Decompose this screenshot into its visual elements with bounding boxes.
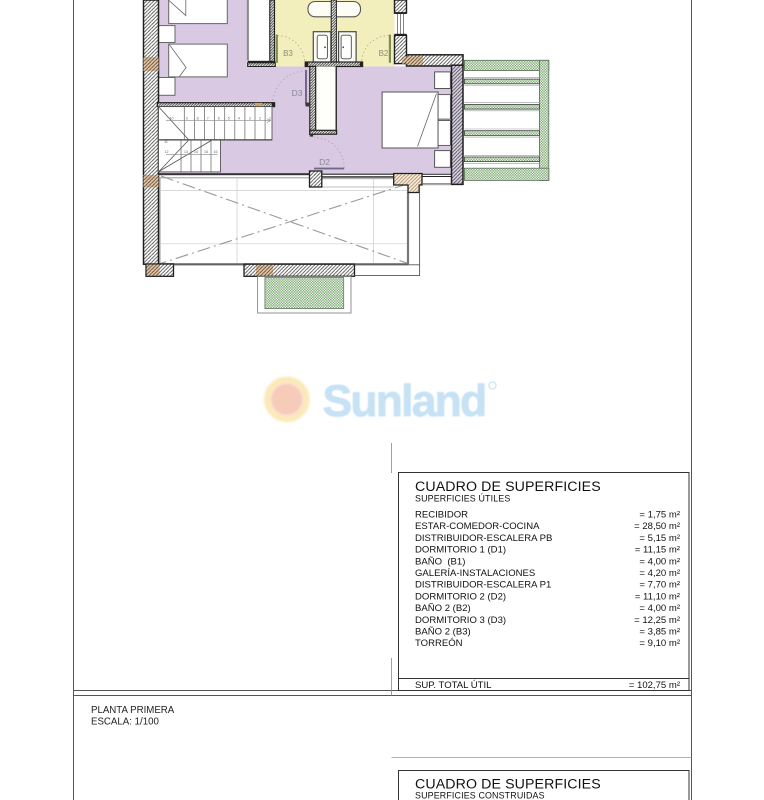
svg-text:GALERÍA-INSTALACIONES: GALERÍA-INSTALACIONES (415, 568, 535, 579)
svg-text:1: 1 (269, 116, 271, 120)
svg-text:= 4,20 m²: = 4,20 m² (639, 568, 680, 579)
svg-text:D2: D2 (319, 157, 330, 167)
svg-text:6: 6 (218, 116, 220, 120)
svg-text:= 9,10 m²: = 9,10 m² (639, 638, 680, 649)
svg-text:Sunland: Sunland (323, 377, 486, 426)
svg-text:ESTAR-COMEDOR-COCINA: ESTAR-COMEDOR-COCINA (415, 521, 540, 532)
svg-text:B3: B3 (283, 49, 293, 58)
svg-text:ESCALA: 1/100: ESCALA: 1/100 (91, 717, 159, 728)
svg-text:= 28,50 m²: = 28,50 m² (634, 521, 680, 532)
svg-text:15: 15 (204, 150, 208, 154)
svg-text:= 11,10 m²: = 11,10 m² (635, 591, 680, 602)
svg-text:8: 8 (197, 116, 199, 120)
svg-text:= 12,25 m²: = 12,25 m² (634, 615, 680, 626)
svg-text:SUPERFICIES CONSTRUIDAS: SUPERFICIES CONSTRUIDAS (415, 791, 545, 800)
svg-text:BAÑO 2 (B2): BAÑO 2 (B2) (415, 603, 471, 614)
svg-text:= 1,75 m²: = 1,75 m² (639, 510, 680, 521)
svg-text:13: 13 (184, 150, 188, 154)
svg-text:DISTRIBUIDOR-ESCALERA PB: DISTRIBUIDOR-ESCALERA PB (415, 533, 552, 544)
svg-text:BAÑO (B1): BAÑO (B1) (415, 556, 465, 567)
svg-text:= 3,85 m²: = 3,85 m² (639, 627, 680, 638)
svg-text:5: 5 (228, 116, 230, 120)
svg-text:4: 4 (238, 116, 240, 120)
svg-text:PLANTA PRIMERA: PLANTA PRIMERA (91, 705, 175, 716)
svg-text:16: 16 (214, 150, 218, 154)
svg-text:D3: D3 (292, 88, 303, 98)
svg-text:14: 14 (194, 150, 198, 154)
svg-text:10: 10 (170, 116, 174, 120)
svg-text:SUP. TOTAL ÚTIL: SUP. TOTAL ÚTIL (415, 680, 491, 691)
svg-text:= 4,00 m²: = 4,00 m² (639, 556, 680, 567)
svg-text:B2: B2 (379, 49, 389, 58)
svg-text:2: 2 (259, 116, 261, 120)
svg-text:DORMITORIO 1 (D1): DORMITORIO 1 (D1) (415, 545, 506, 556)
svg-text:TORREÓN: TORREÓN (415, 638, 463, 649)
svg-text:3: 3 (249, 116, 251, 120)
svg-text:7: 7 (207, 116, 209, 120)
svg-text:SUPERFICIES ÚTILES: SUPERFICIES ÚTILES (415, 494, 510, 504)
svg-text:= 5,15 m²: = 5,15 m² (639, 533, 680, 544)
svg-text:9: 9 (186, 116, 188, 120)
svg-text:BAÑO 2 (B3): BAÑO 2 (B3) (415, 627, 471, 638)
svg-text:12: 12 (165, 150, 169, 154)
svg-text:RECIBIDOR: RECIBIDOR (415, 510, 468, 521)
svg-text:= 102,75 m²: = 102,75 m² (629, 680, 680, 691)
svg-text:DISTRIBUIDOR-ESCALERA P1: DISTRIBUIDOR-ESCALERA P1 (415, 580, 551, 591)
svg-text:= 11,15 m²: = 11,15 m² (635, 545, 680, 556)
svg-text:= 4,00 m²: = 4,00 m² (639, 603, 680, 614)
svg-text:DORMITORIO 2 (D2): DORMITORIO 2 (D2) (415, 591, 506, 602)
svg-text:= 7,70 m²: = 7,70 m² (639, 580, 680, 591)
svg-text:DORMITORIO 3 (D3): DORMITORIO 3 (D3) (415, 615, 506, 626)
svg-text:11: 11 (164, 140, 168, 144)
